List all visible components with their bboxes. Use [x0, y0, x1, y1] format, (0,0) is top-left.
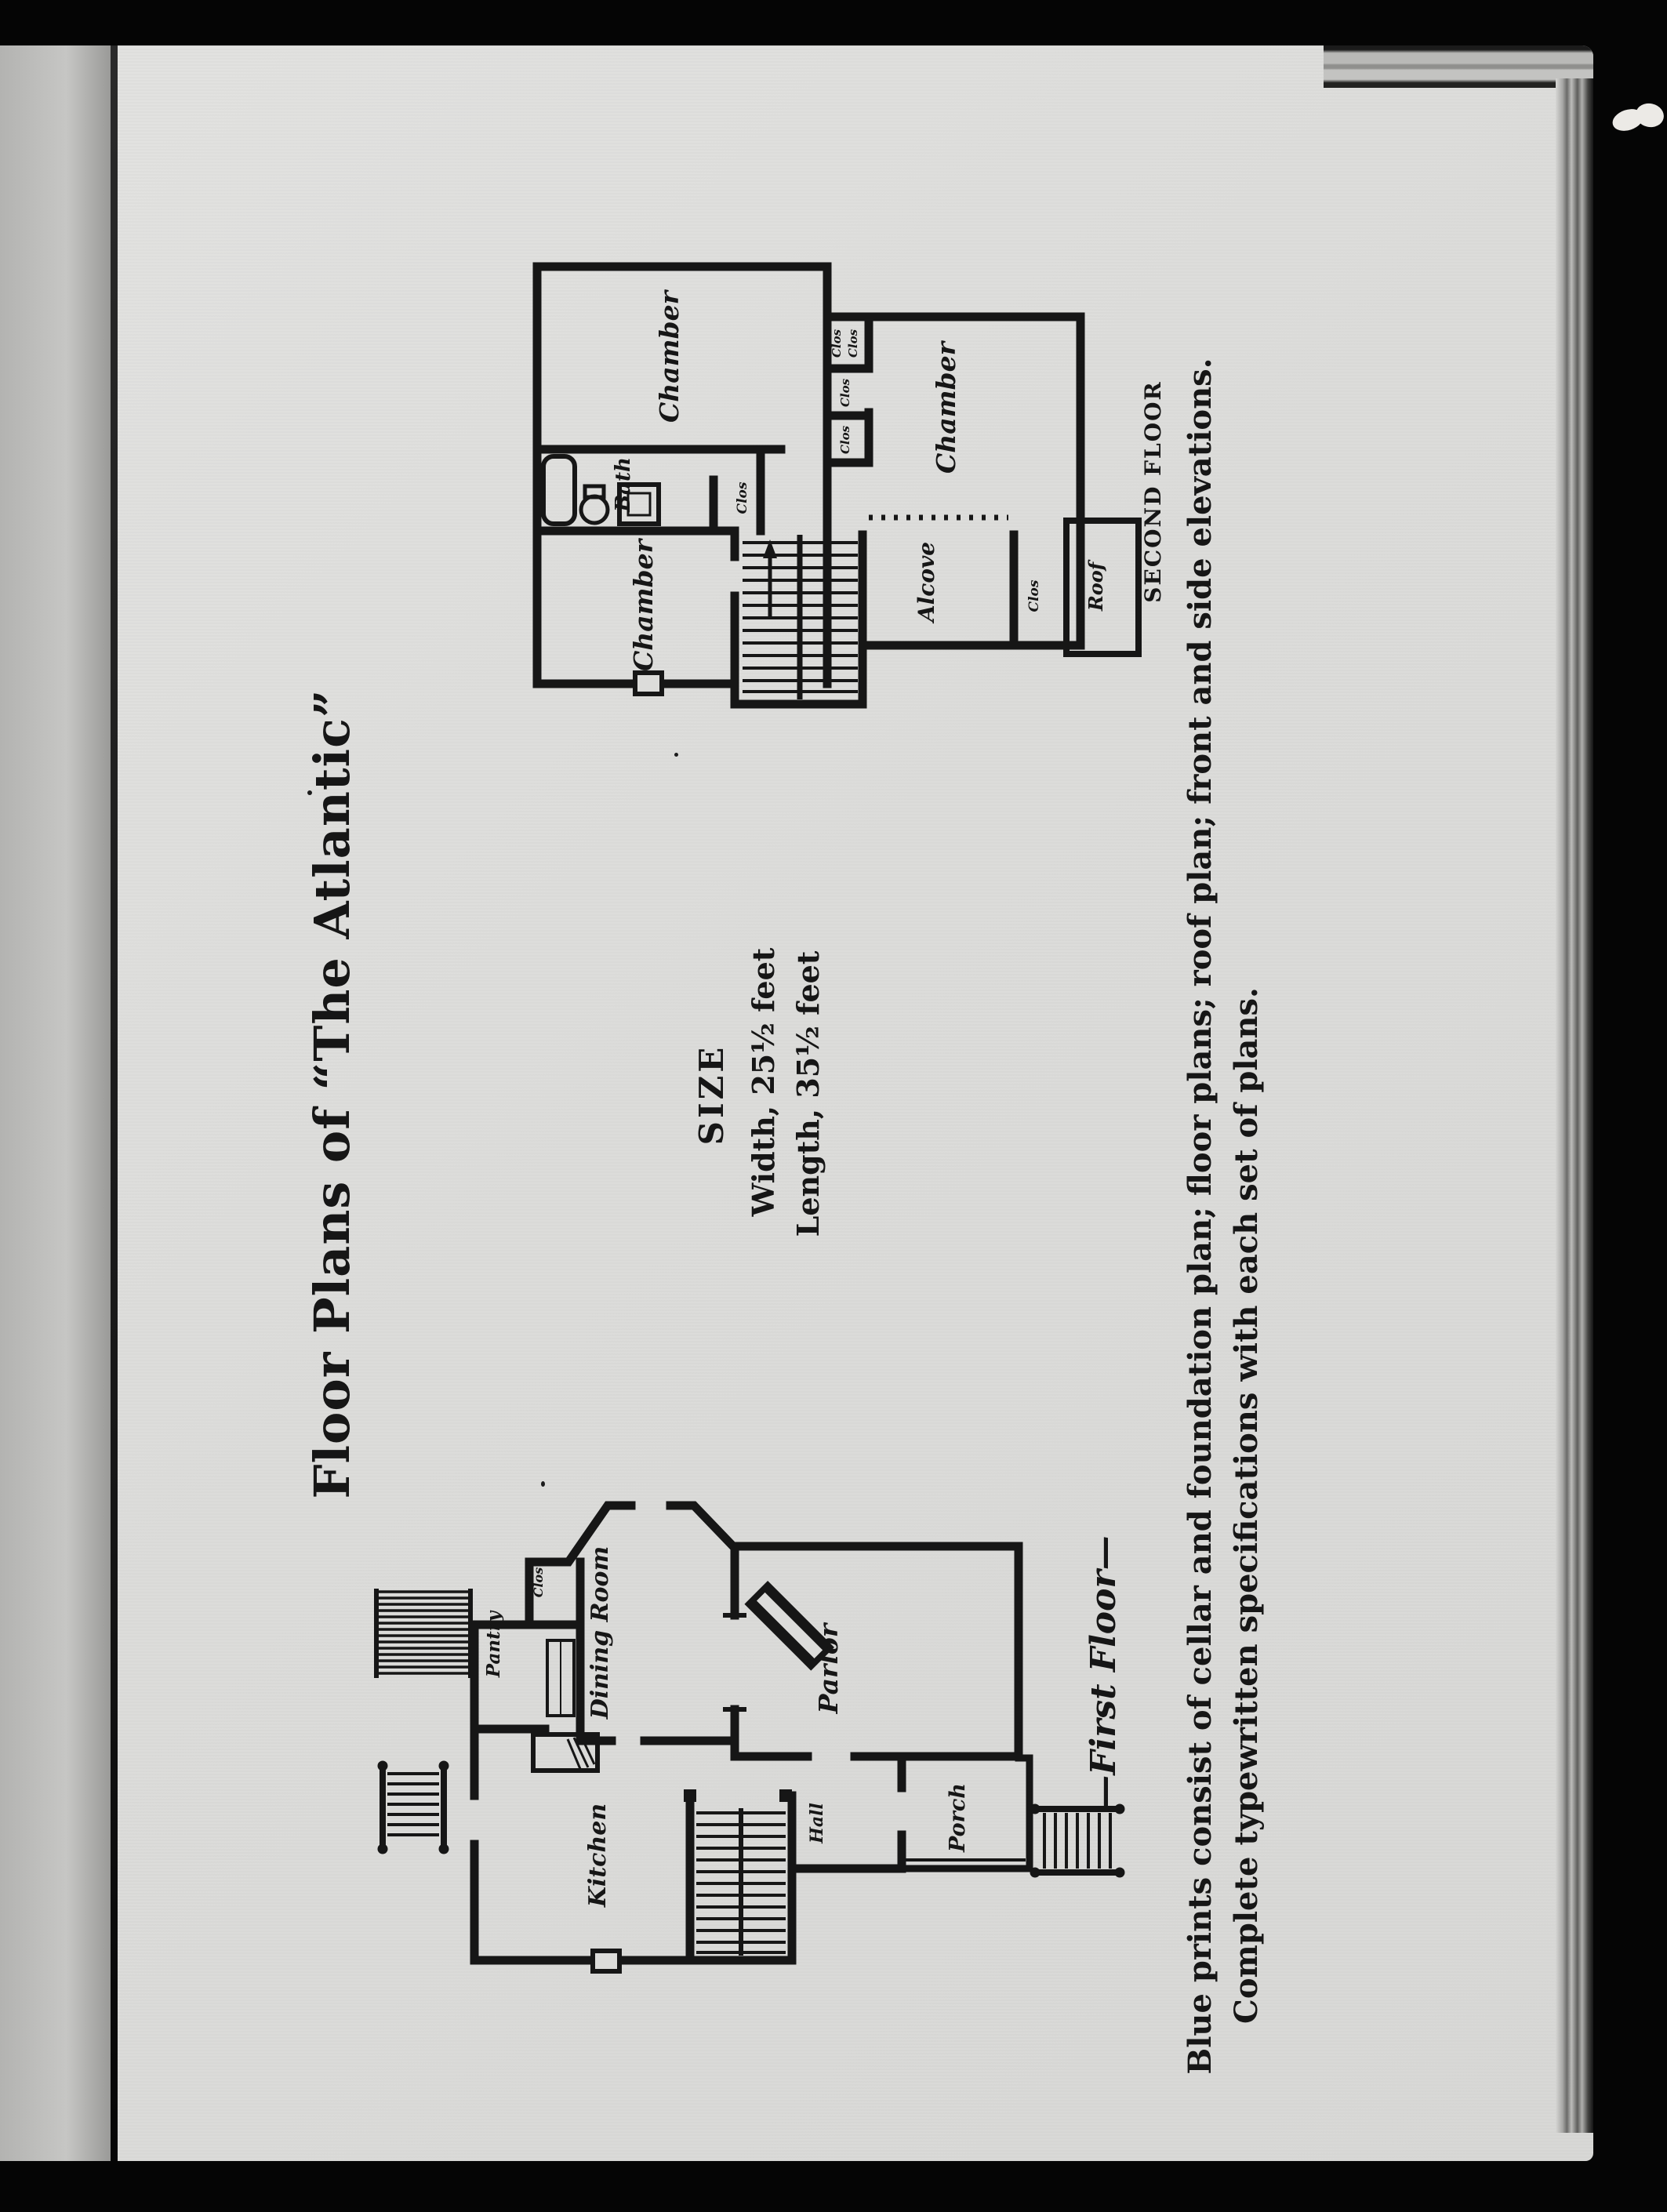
back-steps [378, 1761, 449, 1854]
adjacent-page-edge [0, 45, 111, 2161]
pantry-shelves [547, 1640, 574, 1716]
newel-post [684, 1789, 696, 1802]
size-length-line: Length, 35½ feet [788, 945, 827, 1243]
room-label-parlor: Parlor [813, 1622, 844, 1714]
room-label-clos-alcove: Clos [1026, 579, 1042, 612]
toilet [581, 496, 608, 523]
chimney [635, 673, 662, 694]
room-label-pantry: Pantry [483, 1610, 504, 1678]
bathtub [543, 456, 575, 524]
room-label-kitchen: Kitchen [584, 1803, 612, 1908]
page-fore-edge [1556, 78, 1593, 2133]
room-label-chamber-top: Chamber [654, 289, 685, 423]
room-label-dining-room: Dining Room [587, 1546, 614, 1720]
scanned-book-page: Floor Plans of “The Atlantic” SIZE Width… [0, 0, 1667, 2212]
second-floor-plan: Chamber Bath Clos Chamber Chamber Alcove… [518, 251, 1145, 745]
first-floor-plan: Clos Pantry Dining Room Kitchen Parlor H… [345, 1458, 1176, 2007]
room-label-clos-1: Clos [830, 329, 844, 358]
page-title: Floor Plans of “The Atlantic” [296, 749, 367, 1439]
size-heading: SIZE [691, 1032, 732, 1157]
room-label-chamber-right: Chamber [931, 340, 961, 474]
back-stoop [376, 1589, 470, 1678]
chimney [593, 1951, 619, 1971]
room-label-alcove: Alcove [913, 542, 939, 624]
ink-speck [674, 753, 678, 757]
room-label-clos-3: Clos [838, 378, 852, 407]
room-label-chamber-bottom: Chamber [628, 537, 659, 671]
room-label-clos: Clos [531, 1567, 546, 1598]
second-floor-stairs [743, 535, 858, 699]
room-label-clos-2: Clos [846, 329, 860, 358]
room-label-clos-bath: Clos [735, 481, 750, 514]
room-label-clos-4: Clos [838, 425, 852, 454]
toilet-tank [585, 486, 604, 497]
room-label-bath: Bath [612, 457, 635, 513]
room-label-porch: Porch [946, 1783, 970, 1853]
size-width-line: Width, 25½ feet [743, 949, 783, 1215]
blueprints-note-line1: Blue prints consist of cellar and founda… [1178, 550, 1222, 1883]
room-label-hall: Hall [807, 1803, 827, 1844]
blueprints-note-line2: Complete typewritten specifications with… [1224, 1113, 1268, 1898]
first-floor-stairs [696, 1808, 786, 1956]
room-label-roof: Roof [1084, 559, 1107, 612]
book-gutter-line [111, 45, 118, 2161]
page-top-edge [1324, 45, 1593, 88]
porch-steps [1030, 1804, 1124, 1877]
newel-post [779, 1789, 792, 1802]
